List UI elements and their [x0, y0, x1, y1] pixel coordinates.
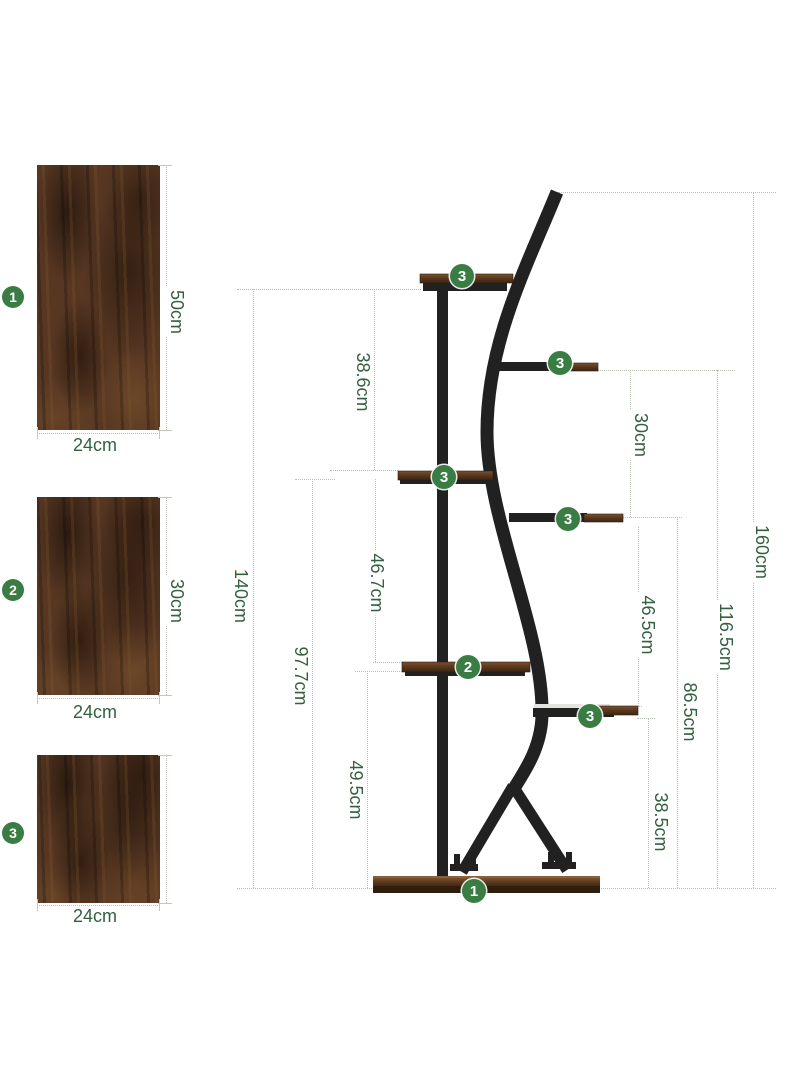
dim-140cm: 140cm: [230, 566, 250, 626]
dim-line: [295, 479, 335, 480]
badge-panel-2: 2: [2, 579, 24, 601]
dim-panel3-width: 24cm: [70, 907, 120, 927]
right-shelf2-wood: [584, 514, 623, 522]
badge-right-shelf-3: 3: [578, 704, 602, 728]
wood-panel-2: [37, 497, 160, 695]
dim-tick: [158, 695, 172, 696]
dim-tick: [159, 899, 160, 911]
dimension-diagram: 1 50cm 24cm 2 30cm 24cm 3 24cm: [0, 0, 800, 1091]
dim-97.7cm: 97.7cm: [290, 643, 310, 708]
badge-panel-3: 3: [2, 822, 24, 844]
foot-stub: [566, 852, 572, 864]
dim-panel1-height: 50cm: [166, 287, 186, 337]
dim-panel2-height: 30cm: [166, 576, 186, 626]
dim-line: [166, 755, 167, 903]
dim-line: [312, 479, 313, 888]
badge-middle-shelf: 3: [432, 465, 456, 489]
dim-line: [37, 433, 160, 434]
dim-line: [253, 289, 254, 888]
dim-line: [677, 517, 678, 888]
badge-left-shelf-2: 2: [456, 655, 480, 679]
front-pole: [437, 283, 448, 876]
right-shelf3-wood: [597, 706, 638, 715]
dim-tick: [158, 903, 172, 904]
foot-stub: [470, 854, 476, 866]
badge-base: 1: [462, 879, 486, 903]
wood-panel-1: [37, 165, 160, 430]
dim-tick: [37, 899, 38, 911]
dim-tick: [158, 165, 172, 166]
dim-panel2-width: 24cm: [70, 703, 120, 723]
foot-stub: [454, 854, 460, 866]
dim-tick: [159, 692, 160, 704]
dim-tick: [37, 692, 38, 704]
dim-line: [37, 698, 160, 699]
dim-tick: [158, 755, 172, 756]
dim-tick: [158, 430, 172, 431]
badge-right-shelf-1: 3: [548, 351, 572, 375]
dim-tick: [37, 427, 38, 439]
dim-tick: [158, 497, 172, 498]
badge-top-shelf: 3: [450, 264, 474, 288]
plant-stand-illustration: [350, 180, 670, 910]
foot-stub: [548, 852, 554, 864]
leg-right: [513, 786, 567, 870]
leg-left: [462, 786, 513, 872]
dim-86.5cm: 86.5cm: [679, 679, 699, 744]
wood-panel-3: [37, 755, 160, 903]
base-board-bottom-edge: [373, 886, 600, 893]
base-board: [373, 878, 600, 887]
badge-panel-1: 1: [2, 286, 24, 308]
dim-panel1-width: 24cm: [70, 436, 120, 456]
dim-tick: [159, 427, 160, 439]
dim-116.5cm: 116.5cm: [715, 600, 735, 674]
badge-right-shelf-2: 3: [556, 507, 580, 531]
dim-160cm: 160cm: [751, 522, 771, 582]
